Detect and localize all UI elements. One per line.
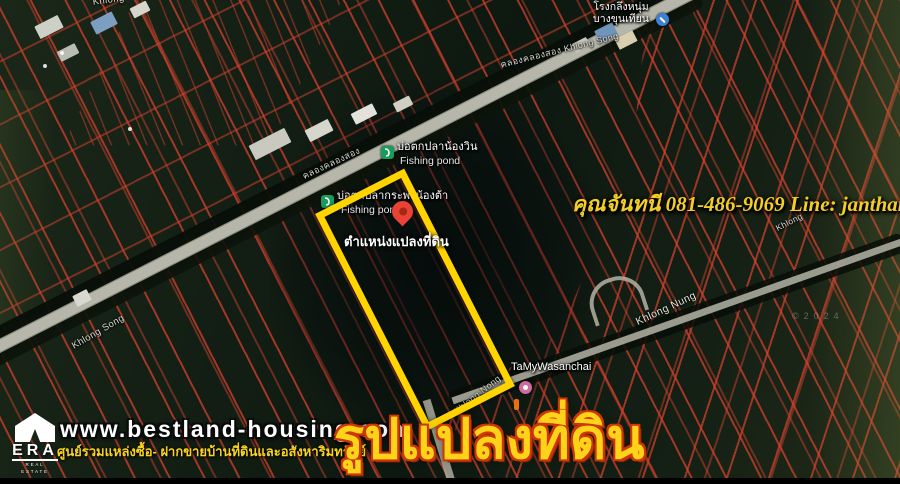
bottom-black-bar (0, 478, 900, 484)
shopping-bag-icon (519, 381, 532, 394)
fishing-rod-glyph (383, 148, 392, 157)
flyer-title-text: รูปแปลงที่ดิน (334, 404, 645, 474)
plot-position-label: ตำแหน่งแปลงที่ดิน (344, 231, 449, 252)
fishing-pond-1-sub: Fishing pond (400, 155, 460, 168)
era-logo: ERA REAL ESTATE (12, 413, 58, 475)
light-fields-left-edge (0, 90, 55, 330)
machine-shop-icon (656, 13, 669, 26)
imagery-watermark: ©2024 (792, 311, 844, 321)
light-dot (60, 51, 64, 55)
fishing-pond-1-icon (381, 146, 394, 159)
era-logo-subtitle: REAL ESTATE (12, 461, 58, 475)
machine-shop-label-line2: บางขุนเทียน (584, 13, 658, 25)
agent-contact-text: คุณจันทนี 081-486-9069 Line: janthanee.p… (572, 188, 900, 221)
shop-label-tamywasanchai: TaMyWasanchai (511, 361, 591, 374)
satellite-map: โรงกลึงหนุ่ม บางขุนเทียน คลองคลองสอง Khl… (0, 0, 900, 484)
machine-shop-label-line1: โรงกลึงหนุ่ม (584, 1, 658, 13)
light-dot (43, 64, 47, 68)
wrench-icon (659, 16, 665, 22)
poi-dot (523, 385, 528, 390)
agency-tagline-text: ศูนย์รวมแหล่งซื้อ- ฝากขายบ้านที่ดินและอส… (57, 441, 366, 462)
light-dot (128, 127, 132, 131)
era-logo-name: ERA (12, 442, 58, 461)
era-house-icon (15, 413, 55, 442)
fishing-pond-1-name: บ่อตกปลาน้องวิน (397, 141, 478, 154)
machine-shop-label: โรงกลึงหนุ่ม บางขุนเทียน (584, 1, 658, 25)
